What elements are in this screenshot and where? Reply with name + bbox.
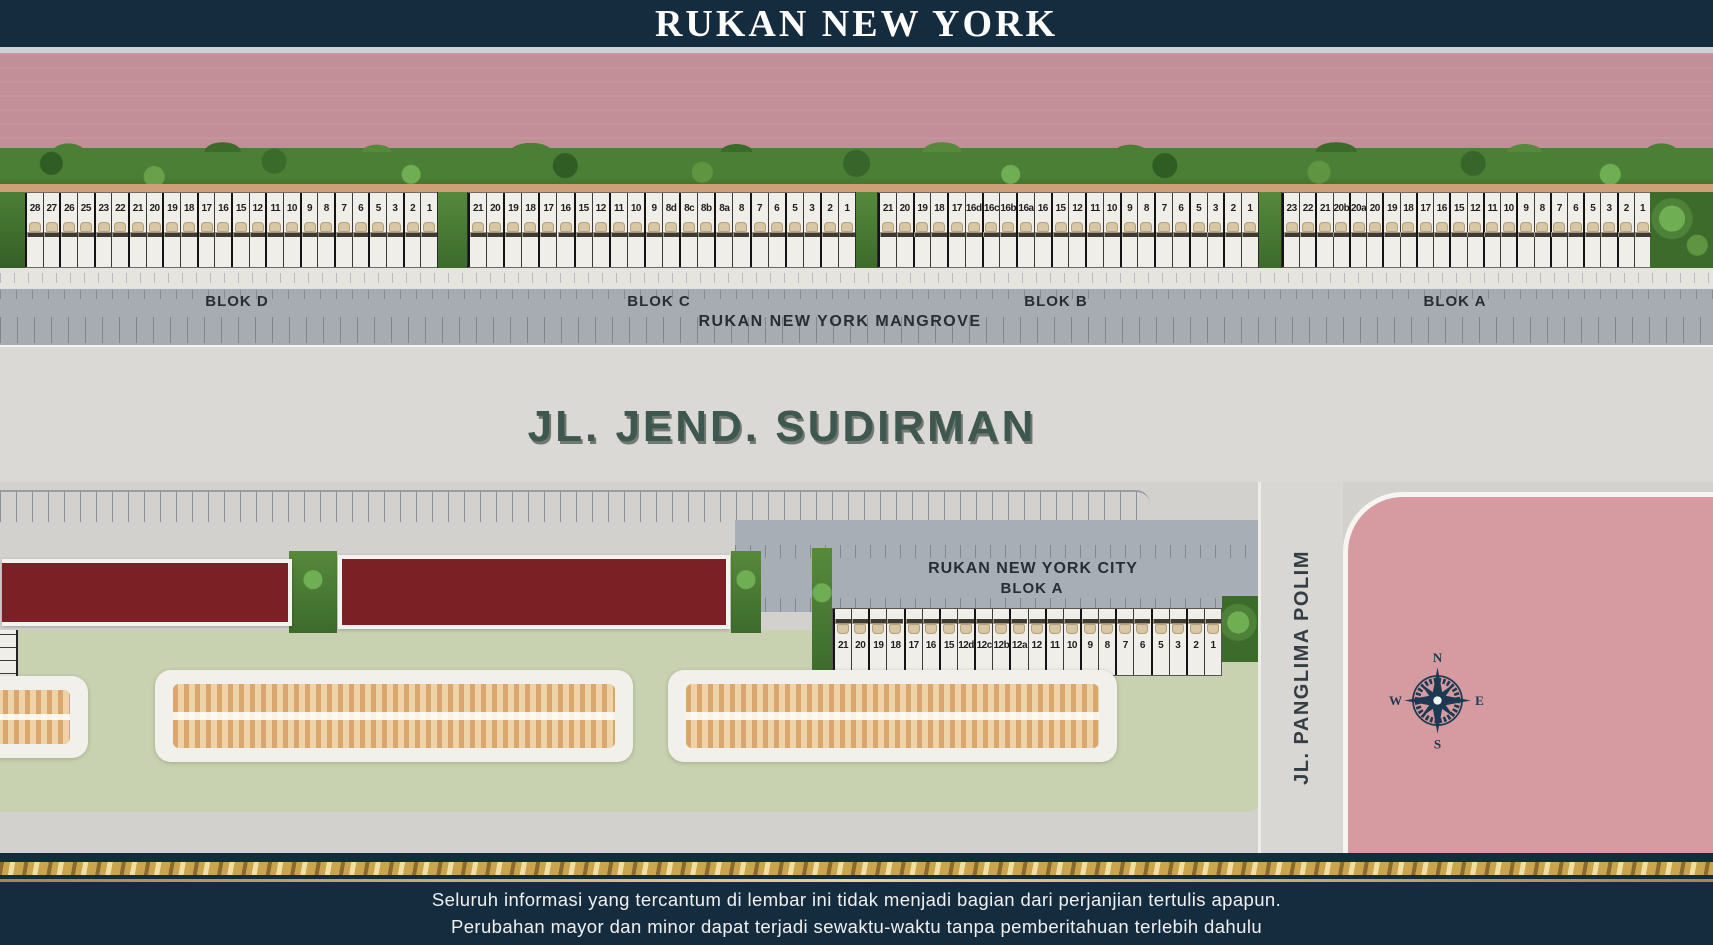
unit-number: 16 (1437, 204, 1447, 214)
unit-number: 2 (1193, 641, 1198, 651)
unit-lot: 15 (939, 609, 957, 675)
unit-entrance-icon (215, 221, 231, 239)
unit-number: 10 (287, 204, 297, 214)
unit-number: 20 (900, 204, 910, 214)
unit-number: 12a (1012, 641, 1027, 651)
unit-entrance-icon (1082, 617, 1098, 635)
unit-entrance-icon (1035, 221, 1051, 239)
unit-entrance-icon (470, 221, 486, 239)
green-separator (1258, 192, 1282, 268)
unit-number: 10 (631, 204, 641, 214)
unit-lot: 10 (1500, 193, 1516, 267)
unit-number: 19 (167, 204, 177, 214)
unit-entrance-icon (914, 221, 930, 239)
unit-number: 1 (1210, 641, 1215, 651)
unit-number: 21 (883, 204, 893, 214)
unit-entrance-icon (61, 221, 77, 239)
unit-entrance-icon (1351, 221, 1367, 239)
unit-number: 16c (984, 204, 999, 214)
unit-number: 9 (1127, 204, 1132, 214)
green-separator (437, 192, 468, 268)
unit-entrance-icon (941, 617, 957, 635)
unit-lot: 27 (43, 193, 60, 267)
unit-number: 20 (149, 204, 159, 214)
unit-entrance-icon (681, 221, 697, 239)
unit-number: 18 (1403, 204, 1413, 214)
unit-number: 7 (1557, 204, 1562, 214)
unit-number: 5 (1590, 204, 1595, 214)
unit-number: 16b (1000, 204, 1016, 214)
unit-lot: 16 (922, 609, 939, 675)
unit-entrance-icon (1069, 221, 1085, 239)
unit-lot: 1 (1634, 193, 1650, 267)
unit-entrance-icon (1484, 221, 1500, 239)
unit-lot: 10 (627, 193, 644, 267)
unit-lot: 1 (1204, 609, 1221, 675)
unit-lot: 12 (1467, 193, 1483, 267)
unit-lot: 21 (878, 193, 896, 267)
unit-number: 7 (757, 204, 762, 214)
unit-entrance-icon (1087, 221, 1103, 239)
blok-c-units: 21 20 19 18 17 (468, 192, 855, 268)
unit-number: 8b (701, 204, 712, 214)
unit-lot: 23 (1282, 193, 1299, 267)
unit-number: 15 (1454, 204, 1464, 214)
unit-lot: 11 (1483, 193, 1500, 267)
unit-lot: 9 (644, 193, 662, 267)
compass-north-label: N (1433, 650, 1443, 665)
unit-entrance-icon (976, 617, 992, 635)
unit-number: 8d (666, 204, 677, 214)
unit-lot: 26 (59, 193, 77, 267)
unit-lot: 8c (679, 193, 697, 267)
unit-entrance-icon (421, 221, 437, 239)
unit-entrance-icon (1173, 221, 1189, 239)
unit-entrance-icon (931, 221, 947, 239)
unit-number: 17 (909, 641, 919, 651)
unit-number: 5 (1158, 641, 1163, 651)
unit-entrance-icon (852, 617, 868, 635)
unit-lot: 21 (1315, 193, 1332, 267)
unit-entrance-icon (897, 221, 913, 239)
unit-lot: 19 (868, 609, 886, 675)
rooftop-building (686, 684, 1099, 748)
unit-entrance-icon (906, 617, 922, 635)
unit-lot: 2 (820, 193, 838, 267)
unit-entrance-icon (250, 221, 266, 239)
compass-west-label: W (1389, 693, 1402, 708)
unit-lot: 11 (265, 193, 283, 267)
unit-number: 21 (473, 204, 483, 214)
blok-d-label: BLOK D (205, 293, 269, 310)
unit-lot: 7 (334, 193, 352, 267)
unit-entrance-icon (1225, 221, 1241, 239)
unit-lot: 7 (1550, 193, 1567, 267)
unit-number: 16 (560, 204, 570, 214)
unit-number: 18 (184, 204, 194, 214)
unit-lot: 7 (1115, 609, 1133, 675)
unit-number: 5 (376, 204, 381, 214)
unit-number: 15 (944, 641, 954, 651)
unit-lot: 15 (574, 193, 592, 267)
unit-number: 10 (1504, 204, 1514, 214)
unit-entrance-icon (27, 221, 43, 239)
unit-entrance-icon (405, 221, 421, 239)
unit-number: 16 (218, 204, 228, 214)
unit-lot: 3 (1600, 193, 1616, 267)
unit-lot: 19 (503, 193, 521, 267)
unit-number: 15 (579, 204, 589, 214)
unit-entrance-icon (1000, 221, 1016, 239)
disclaimer-footer: Seluruh informasi yang tercantum di lemb… (0, 853, 1713, 945)
green-separator (855, 192, 878, 268)
unit-number: 8 (739, 204, 744, 214)
building-platform-right (668, 670, 1117, 762)
unit-number: 20a (1351, 204, 1366, 214)
unit-entrance-icon (646, 221, 662, 239)
unit-lot: 5 (1151, 609, 1169, 675)
unit-number: 3 (392, 204, 397, 214)
unit-entrance-icon (1333, 221, 1349, 239)
unit-entrance-icon (1418, 221, 1434, 239)
unit-lot: 12c (974, 609, 992, 675)
unit-entrance-icon (233, 221, 249, 239)
unit-lot: 16d (965, 193, 982, 267)
green-separator (812, 548, 832, 676)
unit-entrance-icon (1384, 221, 1400, 239)
unit-lot: 20 (1366, 193, 1382, 267)
unit-number: 19 (873, 641, 883, 651)
pedestrian-path (0, 184, 1713, 192)
unit-entrance-icon (1064, 617, 1080, 635)
unit-entrance-icon (1170, 617, 1186, 635)
unit-number: 27 (46, 204, 56, 214)
unit-number: 28 (30, 204, 40, 214)
unit-entrance-icon (1207, 221, 1223, 239)
unit-number: 20 (1370, 204, 1380, 214)
unit-lot: 11 (609, 193, 627, 267)
unit-entrance-icon (949, 221, 965, 239)
unit-entrance-icon (1053, 221, 1069, 239)
unit-entrance-icon (663, 221, 679, 239)
compass-east-label: E (1475, 693, 1484, 708)
gold-ribbon-thin (0, 879, 1713, 882)
unit-entrance-icon (558, 221, 574, 239)
unit-lot: 18 (521, 193, 538, 267)
unit-entrance-icon (787, 221, 803, 239)
blok-b-units: 21 20 19 18 17 (878, 192, 1258, 268)
unit-lot: 6 (1567, 193, 1583, 267)
unit-lot: 15 (231, 193, 249, 267)
unit-entrance-icon (576, 221, 592, 239)
unit-lot: 20 (486, 193, 503, 267)
unit-entrance-icon (1467, 221, 1483, 239)
unit-number: 2 (410, 204, 415, 214)
compass-rose-icon: N E S W (1385, 648, 1490, 753)
unit-number: 21 (838, 641, 848, 651)
mangrove-units-row: 28 27 26 25 23 (0, 192, 1713, 268)
unit-entrance-icon (181, 221, 197, 239)
parking-ticks (0, 273, 1713, 283)
unit-entrance-icon (284, 221, 300, 239)
green-strip (289, 551, 337, 633)
unit-entrance-icon (1156, 221, 1172, 239)
unit-number: 8c (684, 204, 694, 214)
unit-number: 8 (1144, 204, 1149, 214)
unit-number: 3 (1213, 204, 1218, 214)
unit-entrance-icon (1284, 221, 1300, 239)
unit-number: 7 (341, 204, 346, 214)
unit-number: 8 (1105, 641, 1110, 651)
unit-entrance-icon (130, 221, 146, 239)
unit-entrance-icon (1400, 221, 1416, 239)
unit-entrance-icon (267, 221, 283, 239)
unit-entrance-icon (1099, 617, 1115, 635)
unit-lot: 28 (25, 193, 43, 267)
unit-number: 12 (1032, 641, 1042, 651)
unit-lot: 17 (904, 609, 922, 675)
unit-number: 9 (651, 204, 656, 214)
disclaimer-line-2: Perubahan mayor dan minor dapat terjadi … (0, 916, 1713, 938)
unit-lot: 18 (886, 609, 903, 675)
unit-number: 2 (1231, 204, 1236, 214)
unit-lot: 20 (851, 609, 868, 675)
unit-entrance-icon (1122, 221, 1138, 239)
unit-lot: 6 (1133, 609, 1150, 675)
unit-number: 11 (270, 204, 280, 214)
unit-entrance-icon (112, 221, 128, 239)
unit-number: 16 (1038, 204, 1048, 214)
unit-lot: 10 (1063, 609, 1080, 675)
unit-lot: 3 (803, 193, 820, 267)
unit-entrance-icon (822, 221, 838, 239)
unit-entrance-icon (1104, 221, 1120, 239)
panglima-polim-road: JL. PANGLIMA POLIM (1258, 482, 1343, 853)
unit-entrance-icon (1551, 221, 1567, 239)
unit-entrance-icon (1188, 617, 1204, 635)
unit-lot: 8a (714, 193, 732, 267)
unit-lot: 8 (732, 193, 749, 267)
unit-number: 20 (855, 641, 865, 651)
unit-entrance-icon (1367, 221, 1383, 239)
unit-lot: 19 (913, 193, 931, 267)
unit-number: 20 (490, 204, 500, 214)
unit-number: 17 (201, 204, 211, 214)
unit-lot: 6 (768, 193, 785, 267)
unit-lot: 8b (697, 193, 714, 267)
unit-number: 23 (1287, 204, 1297, 214)
unit-number: 6 (1140, 641, 1145, 651)
sudirman-road: JL. JEND. SUDIRMAN (0, 345, 1713, 482)
unit-entrance-icon (1501, 221, 1517, 239)
unit-entrance-icon (1518, 221, 1534, 239)
building-platform-center (155, 670, 633, 762)
unit-entrance-icon (698, 221, 714, 239)
site-plan-map: RUKAN NEW YORK 28 27 26 (0, 0, 1713, 945)
unit-entrance-icon (993, 617, 1009, 635)
unit-lot: 19 (162, 193, 180, 267)
unit-entrance-icon (839, 221, 855, 239)
mangrove-road: BLOK D BLOK C BLOK B BLOK A RUKAN NEW YO… (0, 288, 1713, 345)
unit-lot: 8 (317, 193, 334, 267)
page-title: RUKAN NEW YORK (655, 5, 1058, 43)
tree-cluster-right (1650, 192, 1713, 268)
unit-entrance-icon (164, 221, 180, 239)
sidewalk (0, 268, 1713, 288)
compass-south-label: S (1434, 737, 1441, 752)
unit-number: 8 (1540, 204, 1545, 214)
unit-number: 6 (358, 204, 363, 214)
panglima-polim-label: JL. PANGLIMA POLIM (1291, 550, 1314, 785)
unit-lot: 20a (1349, 193, 1366, 267)
unit-lot: 1 (838, 193, 855, 267)
unit-lot: 18 (180, 193, 197, 267)
unit-lot: 6 (1172, 193, 1189, 267)
unit-entrance-icon (733, 221, 749, 239)
gold-ribbon (0, 862, 1713, 875)
unit-lot: 16 (1034, 193, 1051, 267)
unit-lot: 12 (592, 193, 609, 267)
unit-entrance-icon (1029, 617, 1045, 635)
unit-number: 25 (81, 204, 91, 214)
unit-lot: 16 (1433, 193, 1449, 267)
unit-number: 26 (64, 204, 74, 214)
unit-number: 17 (952, 204, 962, 214)
unit-entrance-icon (78, 221, 94, 239)
unit-number: 22 (115, 204, 125, 214)
unit-entrance-icon (1601, 221, 1617, 239)
unit-entrance-icon (1205, 617, 1221, 635)
unit-lot: 17 (1416, 193, 1433, 267)
unit-lot: 22 (111, 193, 128, 267)
unit-entrance-icon (487, 221, 503, 239)
unit-number: 11 (1050, 641, 1060, 651)
unit-entrance-icon (887, 617, 903, 635)
unit-number: 11 (1488, 204, 1498, 214)
unit-number: 18 (934, 204, 944, 214)
unit-number: 23 (98, 204, 108, 214)
unit-lot: 12d (957, 609, 974, 675)
unit-entrance-icon (1138, 221, 1154, 239)
unit-entrance-icon (199, 221, 215, 239)
unit-entrance-icon (1242, 221, 1258, 239)
unit-number: 9 (1523, 204, 1528, 214)
unit-number: 21 (133, 204, 143, 214)
unit-number: 3 (809, 204, 814, 214)
unit-lot: 18 (930, 193, 947, 267)
unit-number: 15 (1055, 204, 1065, 214)
unit-lot: 9 (1120, 193, 1138, 267)
unit-lot: 1 (420, 193, 437, 267)
unit-lot: 20b (1333, 193, 1349, 267)
unit-lot: 5 (1189, 193, 1207, 267)
unit-entrance-icon (1317, 221, 1333, 239)
unit-lot: 17 (947, 193, 965, 267)
unit-entrance-icon (1568, 221, 1584, 239)
blok-c-label: BLOK C (627, 293, 691, 310)
unit-number: 3 (1607, 204, 1612, 214)
building-platform-left (0, 676, 88, 758)
unit-number: 12 (253, 204, 263, 214)
unit-number: 2 (827, 204, 832, 214)
unit-lot: 16c (982, 193, 1000, 267)
unit-number: 15 (236, 204, 246, 214)
unit-entrance-icon (966, 221, 982, 239)
unit-lot: 9 (1516, 193, 1533, 267)
unit-lot: 7 (1154, 193, 1172, 267)
unit-lot: 17 (538, 193, 556, 267)
unit-number: 5 (792, 204, 797, 214)
unit-number: 5 (1196, 204, 1201, 214)
unit-lot: 12 (1028, 609, 1045, 675)
unit-lot: 8d (662, 193, 679, 267)
unit-entrance-icon (302, 221, 318, 239)
unit-number: 6 (1178, 204, 1183, 214)
unit-entrance-icon (1191, 221, 1207, 239)
unit-entrance-icon (96, 221, 112, 239)
unit-lot: 12 (1068, 193, 1085, 267)
unit-entrance-icon (870, 617, 886, 635)
unit-lot: 1 (1241, 193, 1258, 267)
unit-entrance-icon (353, 221, 369, 239)
unit-number: 10 (1067, 641, 1077, 651)
unit-number: 16 (926, 641, 936, 651)
rooftop-building (173, 684, 615, 748)
unit-lot: 18 (1400, 193, 1416, 267)
unit-lot: 6 (352, 193, 369, 267)
unit-number: 16d (966, 204, 982, 214)
sudirman-road-label: JL. JEND. SUDIRMAN (528, 402, 1037, 452)
unit-number: 12 (596, 204, 606, 214)
unit-number: 6 (774, 204, 779, 214)
rooftop-building (0, 690, 70, 744)
unit-entrance-icon (1618, 221, 1634, 239)
unit-number: 20b (1333, 204, 1349, 214)
unit-entrance-icon (835, 617, 851, 635)
tree-cluster (1222, 596, 1258, 662)
unit-entrance-icon (1300, 221, 1316, 239)
unit-entrance-icon (1153, 617, 1169, 635)
unit-lot: 3 (1169, 609, 1186, 675)
mangrove-road-label: RUKAN NEW YORK MANGROVE (698, 313, 981, 331)
unit-lot: 21 (833, 609, 851, 675)
unit-lot: 8 (1534, 193, 1550, 267)
unit-number: 10 (1107, 204, 1117, 214)
city-section: RUKAN NEW YORK CITY BLOK A 21 20 19 (0, 482, 1713, 853)
title-bar: RUKAN NEW YORK (0, 0, 1713, 47)
city-title-label: RUKAN NEW YORK CITY (928, 560, 1138, 578)
unit-number: 9 (307, 204, 312, 214)
unit-lot: 23 (94, 193, 112, 267)
unit-number: 19 (917, 204, 927, 214)
blok-b-label: BLOK B (1024, 293, 1088, 310)
unit-entrance-icon (505, 221, 521, 239)
unit-lot: 16b (999, 193, 1016, 267)
unit-lot: 2 (403, 193, 421, 267)
unit-entrance-icon (1434, 221, 1450, 239)
unit-entrance-icon (611, 221, 627, 239)
unit-lot: 2 (1617, 193, 1634, 267)
commercial-building-left (2, 559, 292, 626)
unit-lot: 15 (1449, 193, 1466, 267)
green-edge-left (0, 192, 25, 268)
unit-lot: 12a (1009, 609, 1027, 675)
unit-entrance-icon (769, 221, 785, 239)
unit-entrance-icon (752, 221, 768, 239)
unit-entrance-icon (1585, 221, 1601, 239)
unit-lot: 3 (1207, 193, 1224, 267)
unit-lot: 8 (1137, 193, 1154, 267)
